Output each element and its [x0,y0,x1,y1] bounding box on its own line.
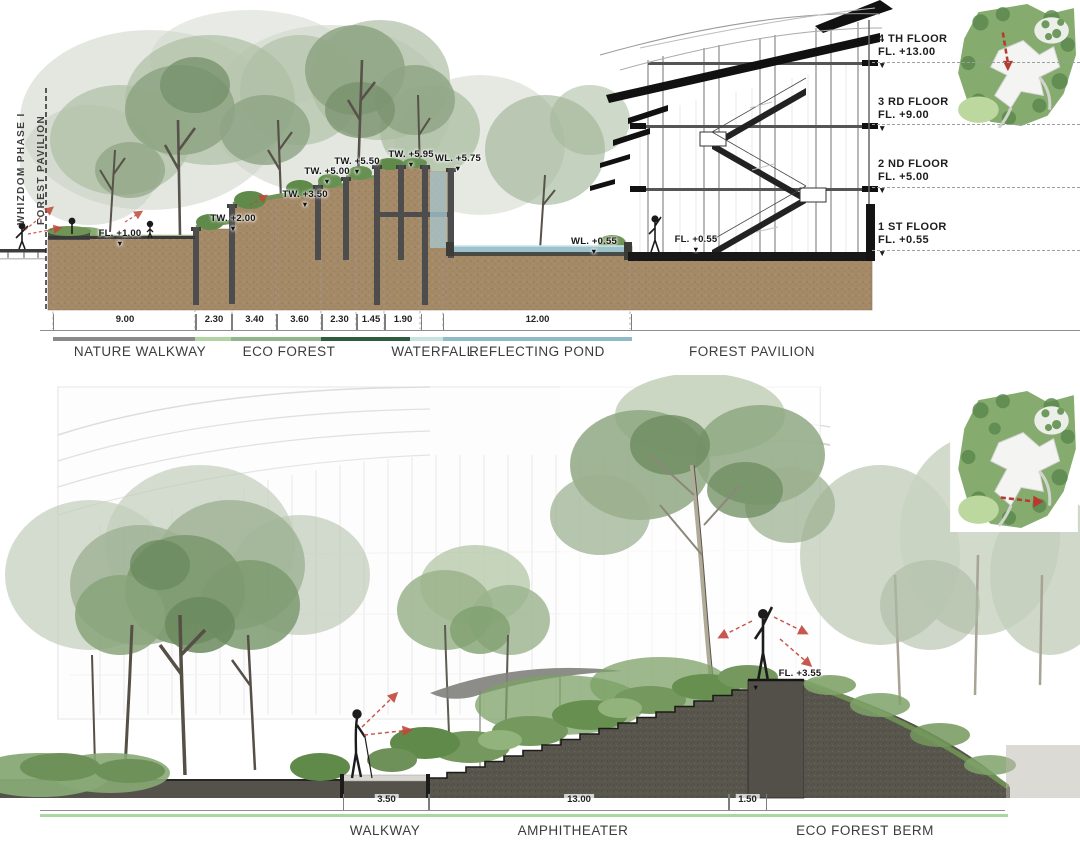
bar-pond-edge [410,337,443,341]
dim-nature-walkway: 9.00 [53,314,197,330]
dim-berm-wall: 1.50 [728,794,767,810]
level-marker: ▼ [675,246,718,253]
bar-walkway-green-line [40,814,1008,817]
floor-level: FL. +0.55 [878,234,998,247]
zone-nature-walkway: NATURE WALKWAY [74,344,206,359]
section-sheet: WHIZDOM PHASE I FOREST PAVILION FL. +1.0… [0,0,1080,852]
level-label-wl-0-55: WL. +0.55▼ [571,236,617,255]
forest-pavilion-building [590,0,893,261]
level-marker: ▼ [334,168,379,175]
level-label-tw-3-50: TW. +3.50▼ [282,189,327,208]
bar-eco-forest [231,337,321,341]
floor-name: 2 ND FLOOR [878,158,998,171]
level-label-tw-5-50: TW. +5.50▼ [334,156,379,175]
roof-slab [606,33,880,103]
floor-level: FL. +5.00 [878,171,998,184]
dim-reflecting-pond: 12.00 [443,314,632,330]
level-marker: ▼ [878,185,998,195]
floor-label-3: 3 RD FLOOR FL. +9.00 ▼ [878,96,998,134]
level-marker: ▼ [388,161,433,168]
dim-2-30a: 2.30 [195,314,233,330]
zone-reflecting-pond: REFLECTING POND [469,344,605,359]
level-marker: ▼ [878,248,998,258]
bar-reflecting-pond [443,337,632,341]
zone-eco-forest: ECO FOREST [243,344,336,359]
floor-level: FL. +9.00 [878,109,998,122]
level-label-tw-5-95: TW. +5.95▼ [388,149,433,168]
bar-eco-forest-light [195,337,231,341]
lawn [958,495,999,523]
section-b-drawing [0,375,1080,852]
dim-amphitheater: 13.00 [428,794,730,810]
level-label-fl-3-55: FL. +3.55 [779,668,822,679]
boundary-label-phase: WHIZDOM PHASE I [16,112,27,225]
eco-forest-berm [804,675,1080,798]
zone-forest-pavilion: FOREST PAVILION [689,344,815,359]
key-plan-b [950,388,1078,532]
level-marker: ▼ [878,60,998,70]
level-label-fl-1-00: FL. +1.00▼ [99,228,142,247]
floor-label-4: 4 TH FLOOR FL. +13.00 ▼ [878,33,998,71]
level-marker: ▼ [210,225,255,232]
dimension-baseline-b [40,810,1005,811]
ground-slab [628,252,874,261]
floor-name: 1 ST FLOOR [878,221,998,234]
level-label-tw-2-00: TW. +2.00▼ [210,213,255,232]
level-label-fl-0-55: FL. +0.55▼ [675,234,718,253]
floor-label-1: 1 ST FLOOR FL. +0.55 ▼ [878,221,998,259]
dim-3-40: 3.40 [231,314,278,330]
bar-nature-walkway [53,337,195,341]
zone-eco-forest-berm: ECO FOREST BERM [796,823,934,838]
level-marker: ▼ [282,201,327,208]
dim-1-90: 1.90 [384,314,422,330]
dim-walkway: 3.50 [343,794,430,810]
boundary-label-pavilion: FOREST PAVILION [36,115,47,225]
zone-walkway: WALKWAY [350,823,421,838]
ground-and-walkway [0,727,460,798]
level-marker: ▼ [435,165,481,172]
level-marker: ▼ [99,240,142,247]
floor-name: 4 TH FLOOR [878,33,998,46]
level-marker: ▼ [752,684,759,691]
dim-2-30b: 2.30 [321,314,358,330]
zone-waterfall: WATERFALL [391,344,474,359]
plinth-wall [748,680,804,798]
zone-amphitheater: AMPHITHEATER [518,823,629,838]
dim-1-45: 1.45 [356,314,386,330]
level-label-wl-5-75: WL. +5.75▼ [435,153,481,172]
dim-3-60: 3.60 [276,314,323,330]
dimension-baseline-a [40,330,1080,331]
waterfall-water [430,172,447,248]
level-marker: ▼ [878,123,998,133]
bar-waterfall [321,337,410,341]
floor-label-2: 2 ND FLOOR FL. +5.00 ▼ [878,158,998,196]
floor-name: 3 RD FLOOR [878,96,998,109]
floor-level: FL. +13.00 [878,46,998,59]
level-marker: ▼ [304,178,349,185]
level-marker: ▼ [571,248,617,255]
